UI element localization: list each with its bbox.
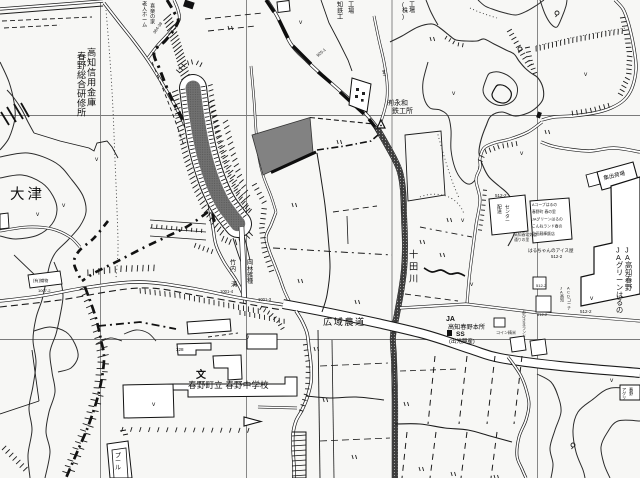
svg-text:溝: 溝 (231, 281, 237, 289)
svg-text:工場: 工場 (348, 2, 354, 15)
svg-text:328: 328 (176, 347, 184, 352)
svg-text:配送: 配送 (497, 204, 502, 215)
svg-text:喜楽の家: 喜楽の家 (150, 2, 155, 26)
svg-text:十田川: 十田川 (409, 248, 418, 283)
svg-text:竹内: 竹内 (230, 259, 236, 273)
svg-text:プール: プール (115, 452, 121, 471)
svg-text:高知信用金庫: 高知信用金庫 (87, 46, 96, 107)
svg-text:㈲永和: ㈲永和 (387, 98, 408, 107)
svg-text:512-2: 512-2 (536, 283, 547, 288)
svg-text:512-2: 512-2 (537, 312, 548, 317)
svg-text:大津: 大津 (10, 186, 45, 203)
svg-text:512-2: 512-2 (580, 309, 592, 314)
svg-text:岡林雑種: 岡林雑種 (247, 260, 253, 286)
svg-text:1001-3: 1001-3 (258, 297, 272, 302)
svg-text:春野町立 春野中学校: 春野町立 春野中学校 (188, 380, 269, 390)
svg-text:高知春野本所: 高知春野本所 (448, 323, 485, 331)
svg-text:1001-4: 1001-4 (220, 289, 234, 294)
svg-text:(有)織物: (有)織物 (33, 277, 48, 284)
svg-text:春野町 春の里: 春野町 春の里 (532, 209, 556, 214)
svg-text:(出光興産): (出光興産) (449, 337, 475, 345)
svg-text:コイン精米: コイン精米 (496, 329, 516, 335)
svg-text:512-2: 512-2 (495, 193, 507, 198)
svg-text:鉄工所: 鉄工所 (392, 106, 413, 115)
svg-text:老人ホーム: 老人ホーム (142, 0, 147, 28)
svg-text:アグリ: アグリ (622, 387, 626, 400)
svg-text:おひさまランド: おひさまランド (522, 309, 526, 339)
svg-text:知鉄工: 知鉄工 (337, 1, 343, 21)
svg-text:こんねランド春の: こんねランド春の (532, 224, 563, 229)
svg-text:春野総合研修所: 春野総合研修所 (77, 50, 86, 117)
svg-text:文: 文 (196, 368, 207, 381)
svg-text:SS: SS (456, 331, 465, 338)
svg-text:Aコープはるの: Aコープはるの (532, 202, 557, 207)
svg-text:センター: センター (505, 204, 510, 224)
svg-text:1007-2: 1007-2 (38, 288, 51, 293)
svg-text:広域農道: 広域農道 (323, 316, 366, 327)
svg-text:JA: JA (446, 316, 455, 323)
svg-text:512-2: 512-2 (551, 254, 563, 259)
svg-text:工場: 工場 (409, 1, 415, 14)
svg-text:高知春電気道: 高知春電気道 (514, 232, 537, 237)
svg-text:通りの里: 通りの里 (514, 237, 529, 242)
svg-text:JAグリーンはるの: JAグリーンはるの (532, 216, 563, 221)
